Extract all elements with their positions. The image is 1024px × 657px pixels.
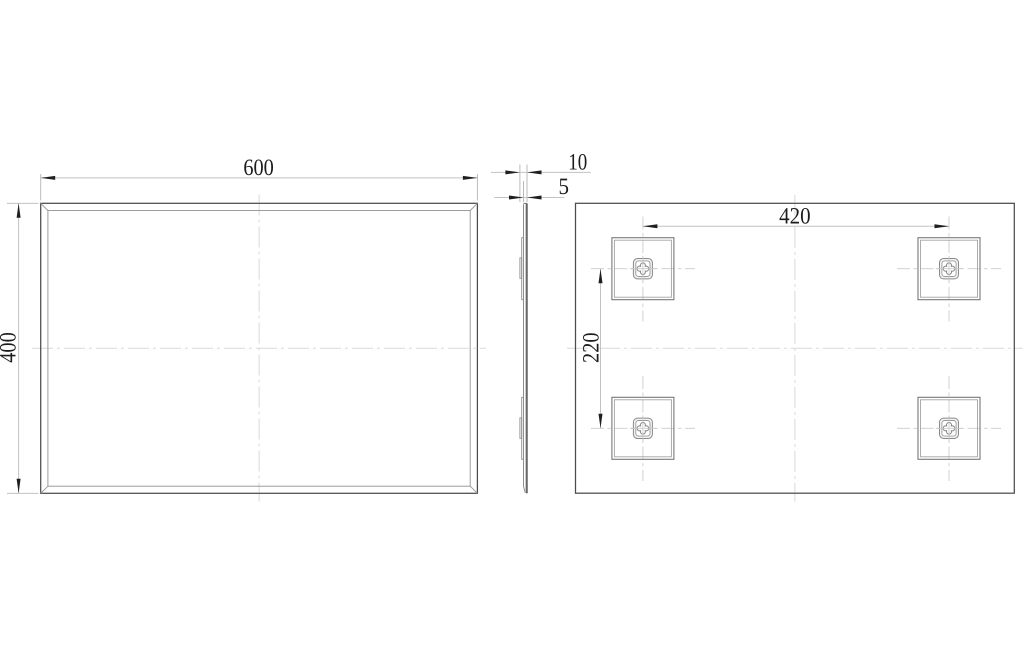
svg-text:420: 420 [779, 204, 811, 230]
svg-text:220: 220 [579, 332, 605, 363]
svg-text:5: 5 [559, 174, 570, 200]
svg-text:600: 600 [243, 155, 274, 181]
svg-text:400: 400 [0, 332, 22, 363]
svg-text:10: 10 [568, 149, 587, 175]
